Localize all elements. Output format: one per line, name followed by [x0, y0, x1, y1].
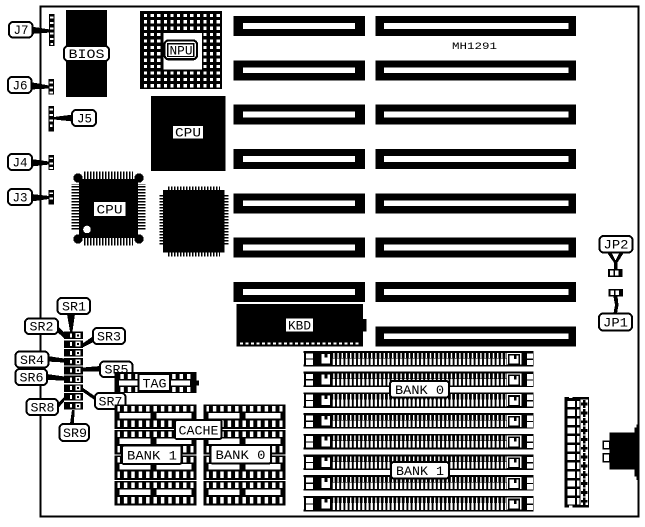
svg-text:J5: J5 [77, 112, 92, 127]
svg-text:SR3: SR3 [97, 330, 121, 345]
svg-text:TAG: TAG [143, 377, 167, 392]
svg-text:SR2: SR2 [30, 320, 54, 335]
svg-text:MH1291: MH1291 [452, 41, 497, 53]
svg-text:SR4: SR4 [20, 353, 44, 368]
svg-text:BIOS: BIOS [69, 47, 105, 62]
svg-text:CACHE: CACHE [179, 424, 219, 439]
svg-text:BANK 1: BANK 1 [396, 464, 444, 479]
svg-text:CPU: CPU [97, 203, 123, 218]
svg-text:SR6: SR6 [20, 371, 44, 386]
svg-text:SR8: SR8 [31, 401, 55, 416]
svg-text:JP1: JP1 [603, 316, 628, 331]
svg-text:NPU: NPU [170, 44, 193, 59]
svg-text:SR1: SR1 [62, 300, 86, 315]
svg-text:J3: J3 [13, 191, 28, 206]
svg-text:CPU: CPU [175, 126, 201, 141]
svg-text:BANK 0: BANK 0 [395, 383, 444, 398]
svg-text:BANK 1: BANK 1 [127, 449, 177, 464]
svg-text:J4: J4 [13, 156, 28, 171]
svg-text:JP2: JP2 [604, 238, 629, 253]
svg-text:J7: J7 [14, 23, 29, 38]
svg-text:J6: J6 [13, 79, 28, 94]
svg-text:SR9: SR9 [63, 426, 87, 441]
svg-text:BANK 0: BANK 0 [216, 448, 266, 463]
svg-text:KBD: KBD [288, 319, 311, 334]
